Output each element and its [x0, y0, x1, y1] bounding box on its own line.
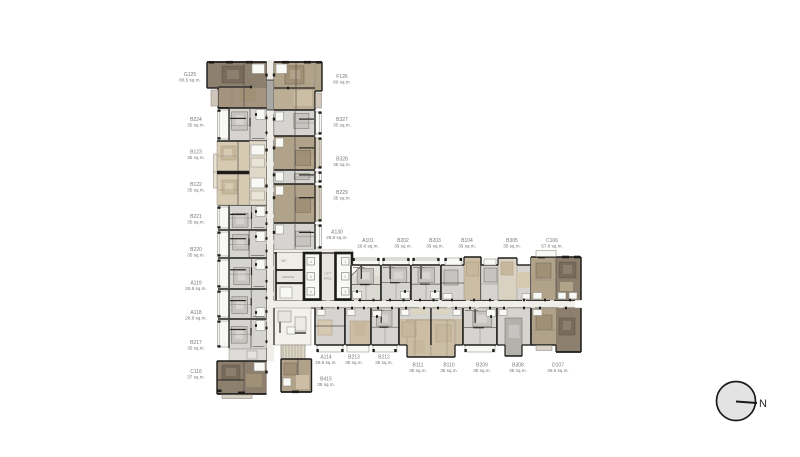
svg-text:WC: WC	[281, 259, 287, 263]
svg-text:28.8 sq.m.: 28.8 sq.m.	[326, 235, 347, 240]
svg-text:35 sq.m.: 35 sq.m.	[333, 123, 351, 128]
svg-text:28.8 sq.m.: 28.8 sq.m.	[185, 286, 206, 291]
svg-text:4: 4	[310, 260, 312, 264]
svg-text:35 sq.m.: 35 sq.m.	[187, 188, 205, 193]
svg-text:35 sq.m.: 35 sq.m.	[333, 162, 351, 167]
svg-text:1: 1	[344, 260, 346, 264]
svg-text:2: 2	[344, 275, 346, 279]
svg-text:35 sq.m.: 35 sq.m.	[458, 244, 476, 249]
svg-text:60 sq.m.: 60 sq.m.	[333, 80, 351, 85]
svg-text:48.6 sq.m.: 48.6 sq.m.	[547, 368, 568, 373]
svg-text:86.5 sq.m.: 86.5 sq.m.	[179, 78, 200, 83]
svg-text:LIFT: LIFT	[325, 272, 332, 276]
svg-text:N: N	[759, 398, 767, 410]
svg-text:35 sq.m.: 35 sq.m.	[473, 368, 491, 373]
svg-text:SERVICE: SERVICE	[282, 275, 294, 279]
svg-text:35 sq.m.: 35 sq.m.	[333, 196, 351, 201]
svg-text:35 sq.m.: 35 sq.m.	[187, 155, 205, 160]
svg-text:28.8 sq.m.: 28.8 sq.m.	[315, 360, 336, 365]
svg-text:35 sq.m.: 35 sq.m.	[375, 360, 393, 365]
svg-text:57.8 sq.m.: 57.8 sq.m.	[541, 244, 562, 249]
svg-text:28.8 sq.m.: 28.8 sq.m.	[357, 244, 378, 249]
svg-text:35 sq.m.: 35 sq.m.	[409, 368, 427, 373]
svg-text:5: 5	[310, 275, 312, 279]
svg-text:6: 6	[310, 290, 312, 294]
svg-text:35 sq.m.: 35 sq.m.	[394, 244, 412, 249]
svg-text:35 sq.m.: 35 sq.m.	[426, 244, 444, 249]
svg-text:35 sq.m.: 35 sq.m.	[317, 382, 335, 387]
svg-text:35 sq.m.: 35 sq.m.	[187, 346, 205, 351]
svg-text:35 sq.m.: 35 sq.m.	[503, 244, 521, 249]
svg-text:35 sq.m.: 35 sq.m.	[345, 360, 363, 365]
svg-text:35 sq.m.: 35 sq.m.	[187, 253, 205, 258]
svg-text:35 sq.m.: 35 sq.m.	[509, 368, 527, 373]
svg-text:3: 3	[344, 290, 346, 294]
svg-text:37 sq.m.: 37 sq.m.	[187, 375, 205, 380]
svg-text:35 sq.m.: 35 sq.m.	[440, 368, 458, 373]
svg-text:HALL: HALL	[324, 277, 333, 281]
svg-text:28.8 sq.m.: 28.8 sq.m.	[185, 316, 206, 321]
svg-text:35 sq.m.: 35 sq.m.	[187, 220, 205, 225]
svg-text:35 sq.m.: 35 sq.m.	[187, 123, 205, 128]
